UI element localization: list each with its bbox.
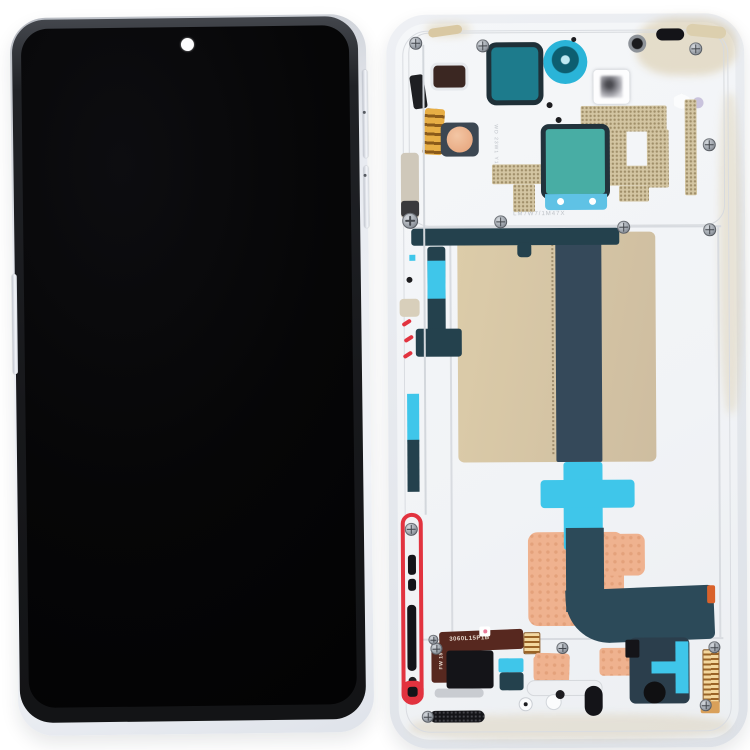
speckled-adhesive bbox=[647, 129, 669, 187]
screw bbox=[703, 223, 716, 236]
sim-reader-block bbox=[446, 650, 493, 688]
front-bezel bbox=[12, 16, 367, 723]
display-panel bbox=[21, 25, 357, 708]
orange-flex-tip bbox=[707, 585, 715, 603]
side-key-red-gasket bbox=[401, 513, 424, 705]
screw bbox=[476, 39, 489, 52]
etched-text: LM7W7/1M47X bbox=[513, 211, 565, 217]
etched-text-vertical: WD 23W1 Y1 bbox=[493, 124, 499, 164]
gasket-black-bar bbox=[408, 555, 416, 575]
pin-dot bbox=[556, 117, 562, 123]
rail-dot bbox=[406, 277, 412, 283]
screw bbox=[556, 642, 568, 654]
perforation-line bbox=[551, 240, 554, 454]
cyan-adhesive-horizontal bbox=[541, 480, 635, 508]
speckled-adhesive bbox=[607, 166, 649, 186]
cyan-strip bbox=[651, 661, 677, 673]
pin-dot bbox=[547, 102, 553, 108]
copper-heat-spreader-ext bbox=[603, 534, 645, 576]
pin-dot bbox=[571, 37, 576, 42]
cyan-dot bbox=[409, 255, 415, 261]
gasket-red-cap bbox=[402, 681, 424, 703]
screw bbox=[405, 523, 418, 536]
heat-patch-blue-strip bbox=[545, 194, 607, 210]
gasket-cap-core bbox=[408, 687, 418, 697]
side-screw-dot bbox=[363, 111, 366, 114]
speckled-adhesive bbox=[513, 184, 535, 212]
screw bbox=[689, 42, 702, 55]
earpiece-adhesive-patch bbox=[486, 42, 543, 105]
cyan-side-tape bbox=[427, 261, 445, 299]
pink-dot bbox=[483, 629, 487, 633]
sensor-window bbox=[433, 66, 465, 88]
screw bbox=[700, 699, 712, 711]
black-adhesive-circle bbox=[644, 681, 666, 703]
speckled-adhesive bbox=[492, 164, 547, 184]
front-assembly bbox=[10, 14, 375, 736]
product-photo: LM7W7/1M47X WD 23W1 Y1 bbox=[0, 0, 750, 750]
navy-step-tape bbox=[416, 329, 462, 357]
screw bbox=[703, 138, 716, 151]
boss-dot bbox=[524, 702, 528, 706]
tan-patch bbox=[400, 299, 420, 317]
main-flex-vertical bbox=[555, 236, 602, 462]
screw bbox=[409, 37, 422, 50]
cyan-patch-small bbox=[498, 658, 523, 672]
black-square bbox=[625, 640, 639, 658]
side-screw-dot bbox=[364, 174, 367, 177]
front-camera-ring bbox=[543, 40, 587, 84]
gasket-black-bar bbox=[408, 579, 416, 591]
speckled-adhesive bbox=[619, 186, 649, 202]
speaker-mesh-bar bbox=[430, 710, 485, 722]
flex-gold-pads bbox=[523, 632, 540, 654]
screw bbox=[708, 641, 720, 653]
camera-hole-dot bbox=[628, 35, 646, 53]
patch-hole bbox=[589, 198, 596, 205]
gasket-black-rail bbox=[407, 605, 416, 671]
black-oval-mesh bbox=[585, 686, 603, 716]
boss-with-screw bbox=[519, 697, 533, 711]
mini-sticker bbox=[479, 626, 490, 636]
cyan-rail-tape bbox=[407, 394, 419, 442]
mic-slot bbox=[656, 28, 684, 40]
navy-patch-small bbox=[500, 672, 524, 690]
qr-code-sticker bbox=[593, 70, 629, 104]
front-camera-punch-hole bbox=[181, 38, 194, 51]
navy-blob bbox=[517, 242, 531, 257]
copper-coil-pad bbox=[447, 126, 473, 152]
screw bbox=[428, 635, 438, 645]
navy-rail-tape bbox=[407, 440, 419, 492]
flex-elbow-horizontal bbox=[565, 585, 715, 645]
screw bbox=[422, 711, 434, 723]
qr-code-smudge bbox=[600, 76, 622, 98]
black-dot bbox=[556, 690, 565, 699]
gray-bar bbox=[435, 688, 484, 697]
coil-pad-frame bbox=[441, 122, 479, 156]
back-assembly: LM7W7/1M47X WD 23W1 Y1 bbox=[386, 13, 748, 749]
center-heat-patch bbox=[541, 124, 610, 199]
screw bbox=[617, 221, 630, 234]
patch-hole bbox=[557, 198, 564, 205]
fpc-gold-connector bbox=[702, 649, 719, 704]
navy-top-strip bbox=[411, 228, 619, 246]
screw bbox=[402, 213, 418, 229]
speckled-adhesive bbox=[685, 99, 698, 195]
screw bbox=[494, 215, 507, 228]
